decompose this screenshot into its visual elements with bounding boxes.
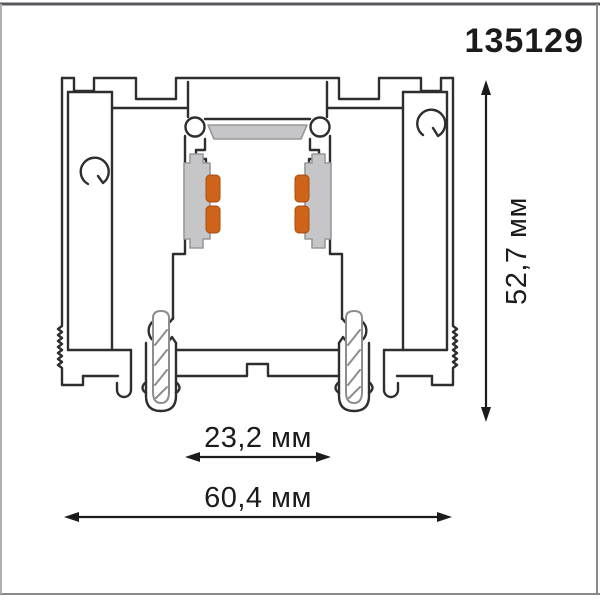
right-corner-boss: [417, 110, 445, 136]
insulator-strip: [208, 125, 307, 139]
profile-top-edge: [62, 78, 453, 99]
screws: [153, 311, 362, 403]
outer-width-dimension-label: 60,4 мм: [204, 482, 312, 514]
contact-pads: [206, 175, 309, 233]
central-channel-left-lobe: [186, 118, 205, 137]
contact-carrier-right: [305, 154, 331, 248]
technical-drawing-page: 135129: [0, 0, 600, 600]
contact-pad-right-upper: [295, 175, 309, 202]
contact-pad-left-upper: [206, 175, 220, 202]
arrowhead-right: [316, 452, 331, 462]
left-shelf-hook: [117, 350, 131, 397]
profile-left-outer-wall: [58, 78, 83, 385]
height-dimension-label: 52,7 мм: [501, 197, 533, 305]
bottom-plate-bottom-edge: [176, 364, 339, 376]
inner-width-dimension-label: 23,2 мм: [204, 422, 312, 454]
dimension-outer-width: 60,4 мм: [64, 482, 452, 522]
contact-pad-right-lower: [295, 206, 309, 233]
dimension-inner-width: 23,2 мм: [185, 422, 331, 462]
product-code-label: 135129: [465, 22, 584, 60]
profile-cross-section-drawing: 135129: [0, 0, 600, 600]
contact-pad-left-lower: [206, 206, 220, 233]
arrowhead-down: [481, 407, 491, 422]
arrowhead-left: [185, 452, 200, 462]
left-corner-boss: [81, 158, 109, 184]
right-shelf-hook: [384, 350, 398, 397]
central-channel-right-lobe: [311, 118, 330, 137]
contact-carrier-left: [184, 154, 210, 248]
arrowhead-right: [437, 512, 452, 522]
arrowhead-up: [481, 80, 491, 95]
arrowhead-left: [64, 512, 79, 522]
dimension-height: 52,7 мм: [481, 80, 533, 422]
